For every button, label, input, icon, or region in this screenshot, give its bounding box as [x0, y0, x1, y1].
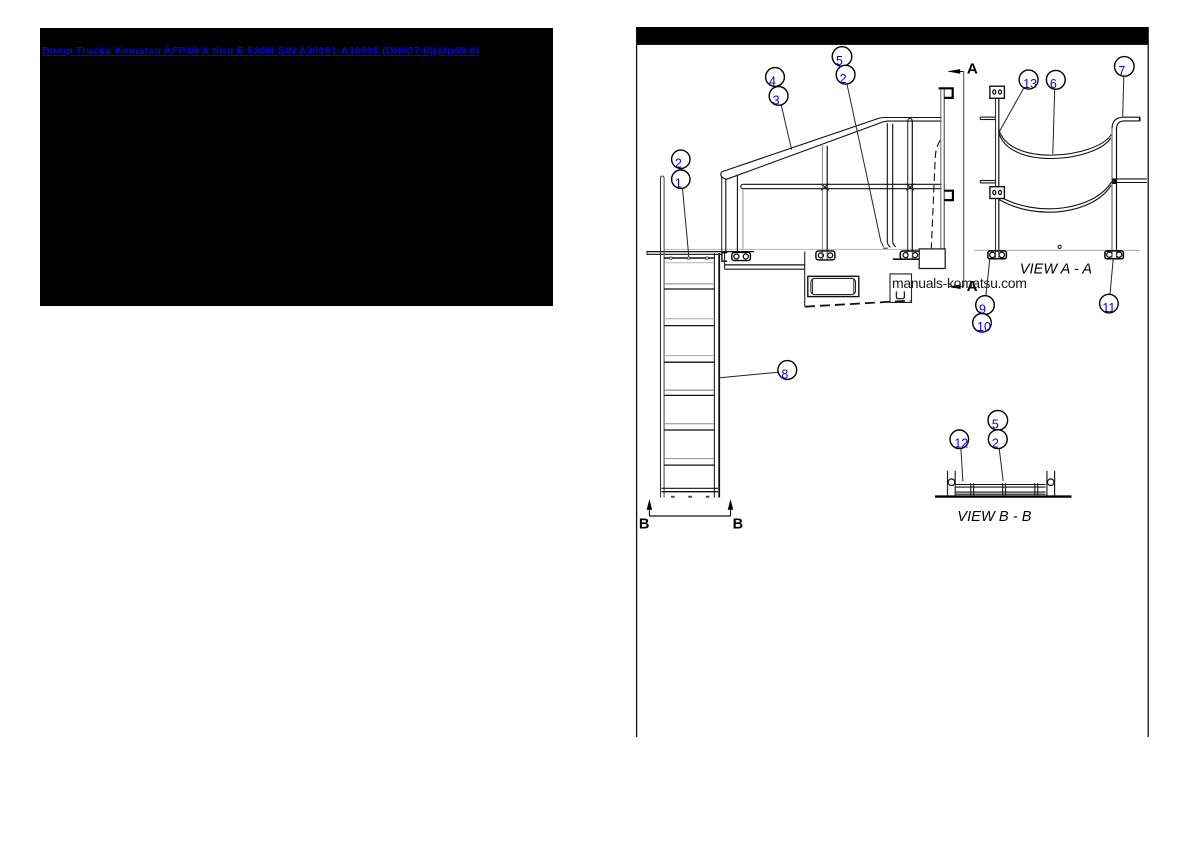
svg-text:12: 12	[954, 437, 968, 451]
svg-text:13: 13	[1023, 77, 1037, 91]
svg-text:10: 10	[977, 320, 991, 334]
svg-text:11: 11	[1102, 301, 1115, 315]
svg-text:B: B	[639, 516, 650, 532]
svg-text:6: 6	[1050, 77, 1057, 91]
svg-text:A: A	[967, 61, 978, 78]
svg-text:manuals-komatsu.com: manuals-komatsu.com	[892, 275, 1027, 291]
svg-text:8: 8	[781, 367, 788, 381]
svg-text:5: 5	[992, 418, 999, 432]
svg-text:7: 7	[1118, 64, 1125, 78]
svg-text:1: 1	[675, 177, 682, 191]
svg-text:B: B	[733, 516, 744, 532]
svg-text:VIEW A - A: VIEW A - A	[1020, 262, 1092, 278]
svg-text:9: 9	[979, 302, 986, 316]
svg-text:2: 2	[840, 72, 847, 86]
svg-text:2: 2	[675, 157, 682, 171]
svg-text:3: 3	[773, 93, 780, 107]
svg-text:4: 4	[769, 74, 776, 88]
svg-text:VIEW B - B: VIEW B - B	[957, 509, 1032, 525]
svg-text:5: 5	[836, 54, 843, 68]
svg-text:2: 2	[992, 437, 999, 451]
